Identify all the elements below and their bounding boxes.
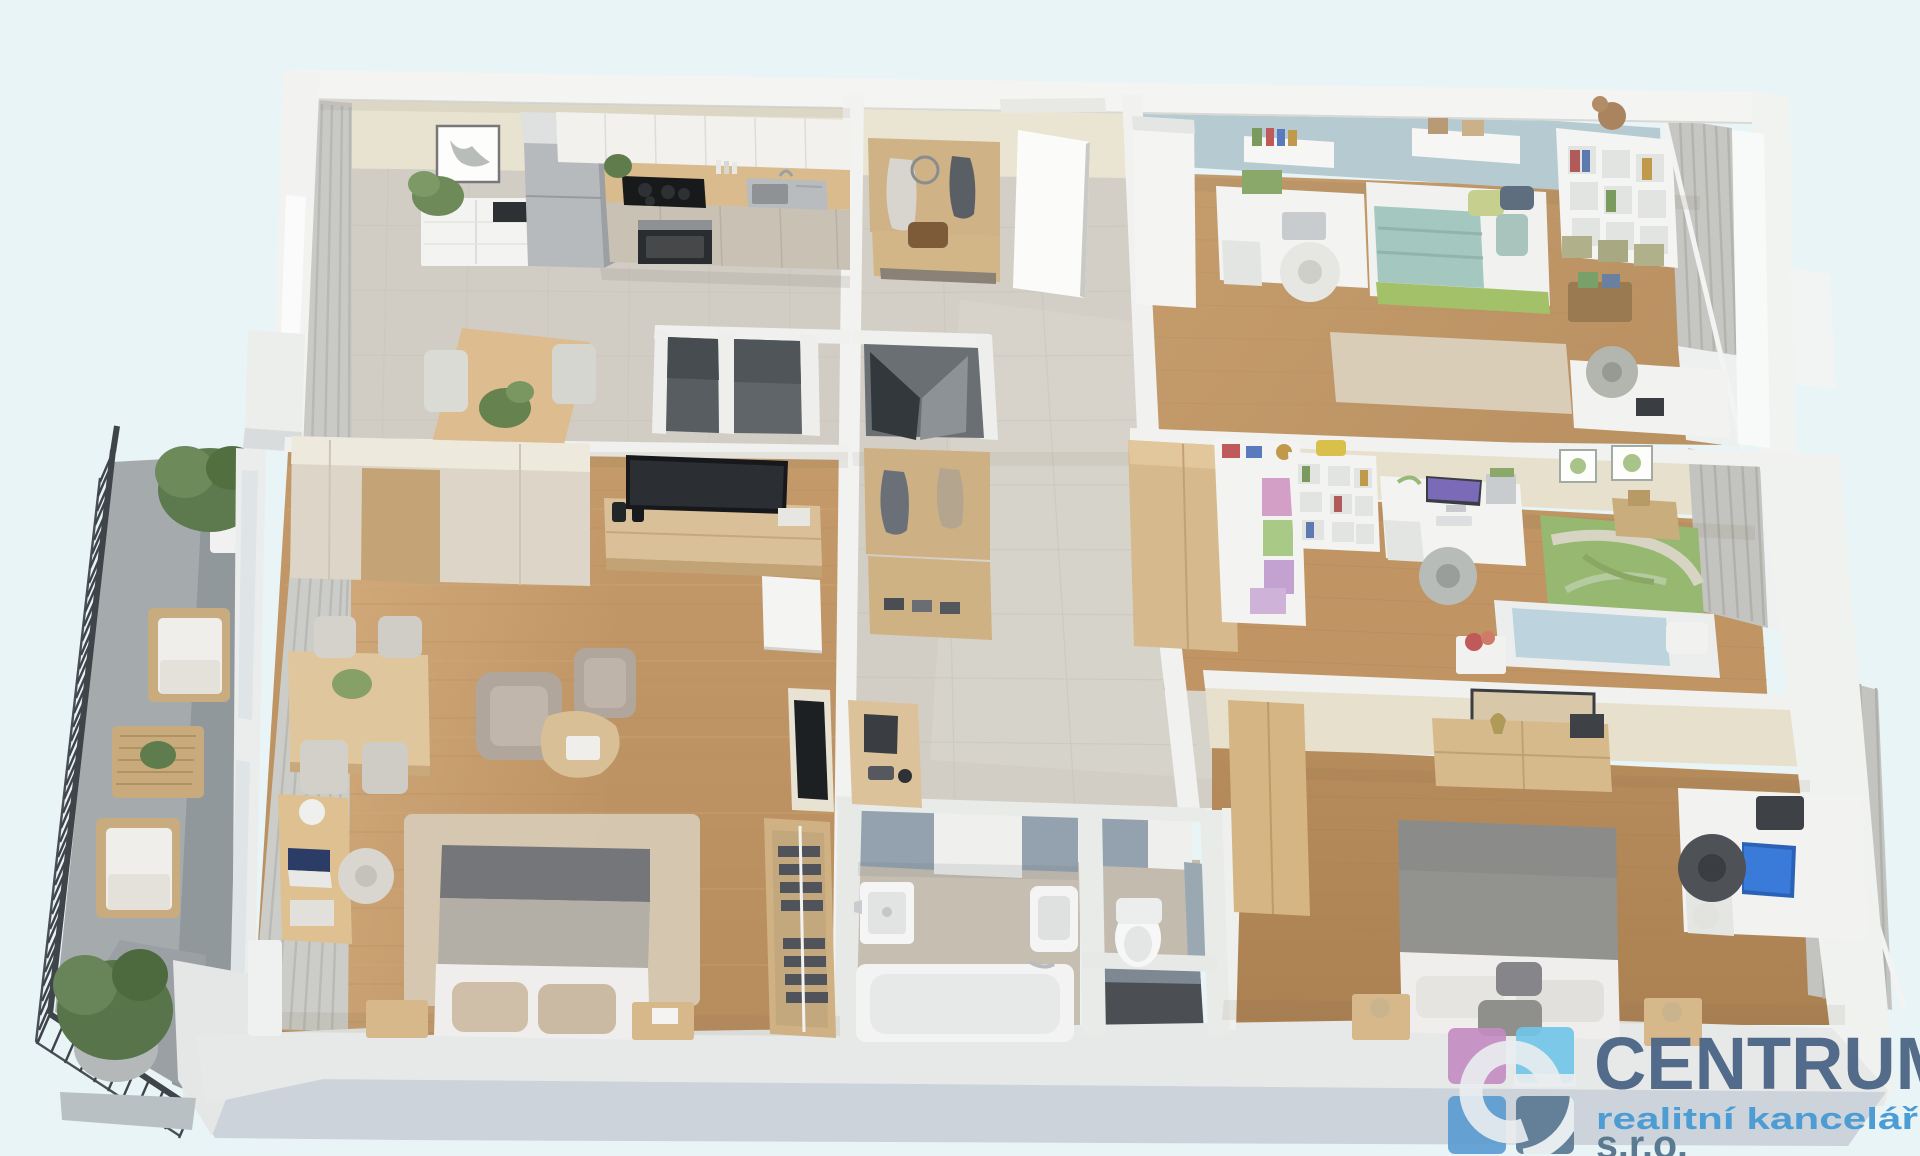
svg-text:CENTRUM: CENTRUM xyxy=(1594,1022,1920,1105)
svg-text:s.r.o.: s.r.o. xyxy=(1596,1123,1688,1156)
